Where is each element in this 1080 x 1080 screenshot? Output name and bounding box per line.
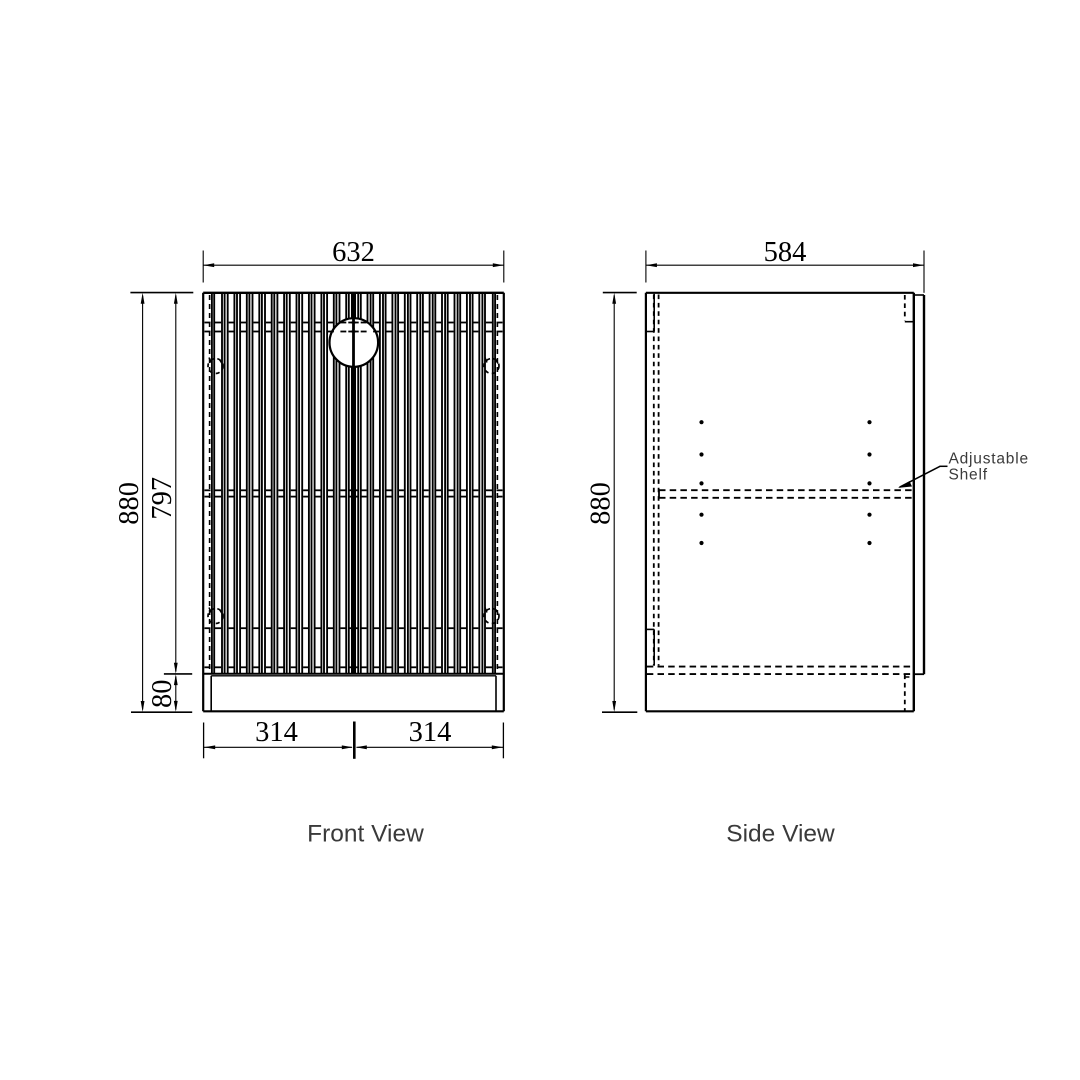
svg-text:Side View: Side View [726,821,835,848]
svg-text:314: 314 [255,717,298,748]
svg-text:797: 797 [147,477,178,520]
svg-text:Front View: Front View [307,821,424,848]
svg-text:584: 584 [764,237,807,268]
svg-text:880: 880 [114,482,145,525]
svg-text:Shelf: Shelf [949,466,988,483]
svg-text:880: 880 [586,482,617,525]
svg-text:80: 80 [147,679,178,708]
svg-text:632: 632 [332,237,375,268]
svg-text:Adjustable: Adjustable [949,450,1029,467]
svg-text:314: 314 [409,717,452,748]
